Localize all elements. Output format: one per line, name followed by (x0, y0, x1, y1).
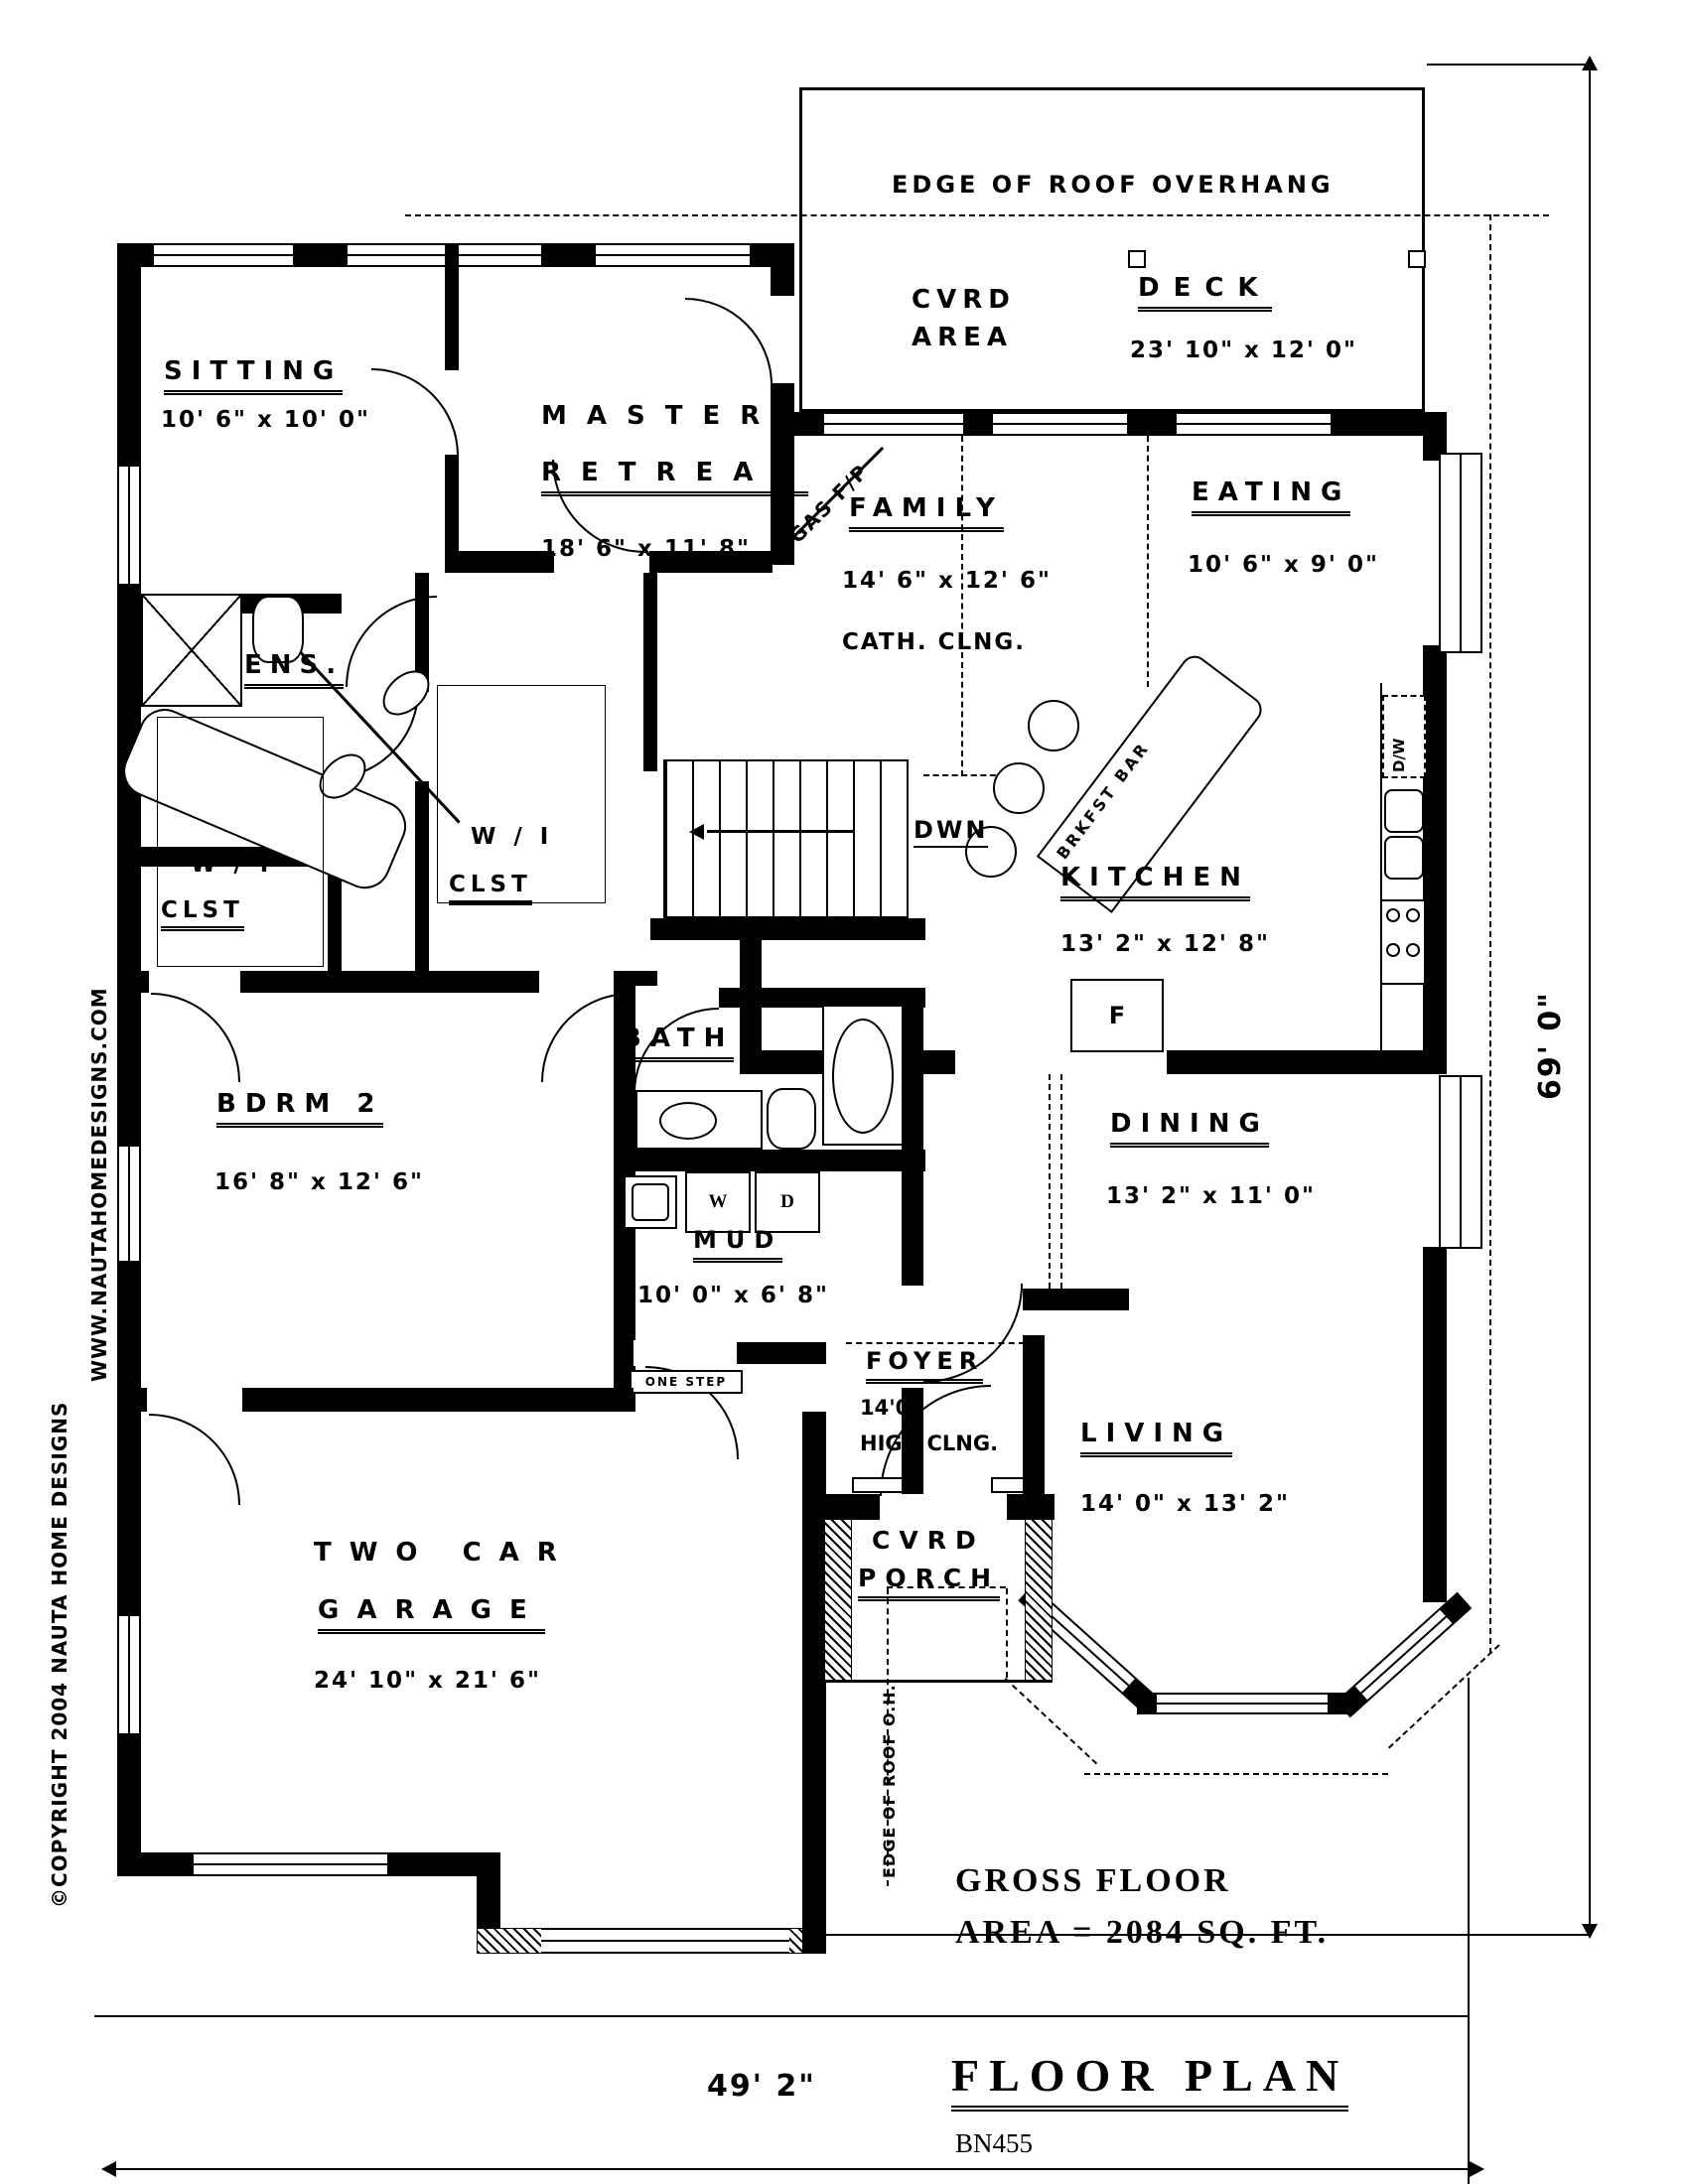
wall-right (1423, 1247, 1447, 1602)
bath-sink (659, 1102, 717, 1140)
window (824, 412, 963, 436)
toilet (767, 1088, 816, 1150)
dims-bdrm2: 16' 8" x 12' 6" (214, 1169, 424, 1195)
plan-number: BN455 (955, 2128, 1033, 2159)
stool (1028, 700, 1079, 751)
label-cvrd-area1: CVRD (912, 286, 1016, 316)
dims-master: 18' 6" x 11' 8" (541, 536, 751, 562)
closet-shelf (437, 685, 606, 903)
wall-foyer-right (1023, 1335, 1045, 1494)
one-step-label: ONE STEP (645, 1375, 727, 1389)
tub-basin (832, 1019, 894, 1134)
deck-post (1128, 250, 1146, 268)
breakfast-bar-label: BRKFST BAR (1053, 739, 1153, 863)
label-ens: ENS. (244, 651, 344, 689)
patio-door (993, 412, 1127, 436)
label-dwn: DWN (914, 816, 988, 848)
dims-sitting: 10' 6" x 10' 0" (161, 407, 370, 433)
label-dining: DINING (1110, 1110, 1269, 1148)
window (117, 467, 141, 584)
fridge: F (1070, 979, 1164, 1052)
sink-basin (1384, 789, 1424, 833)
label-mud: MUD (693, 1227, 782, 1263)
washer-label: W (709, 1191, 728, 1213)
wall (445, 455, 459, 564)
window (596, 243, 750, 267)
label-bdrm2: BDRM 2 (216, 1090, 383, 1128)
window (117, 1147, 141, 1261)
dim-arrow-down (1582, 1924, 1598, 1939)
label-sitting: SITTING (164, 357, 343, 395)
dryer: D (755, 1171, 820, 1233)
label-master1: MASTER (541, 402, 779, 432)
dims-garage: 24' 10" x 21' 6" (314, 1668, 541, 1694)
window (1354, 1608, 1454, 1701)
porch-edge (824, 1680, 1053, 1683)
burner (1386, 908, 1400, 922)
label-deck: DECK (1138, 274, 1272, 312)
floor-plan-sheet: F ONE STEP D/W BRKFST BAR (0, 0, 1688, 2184)
label-family: FAMILY (849, 494, 1004, 532)
wall (902, 988, 923, 1286)
ceiling-break (961, 436, 963, 776)
burner (1406, 943, 1420, 957)
dims-dining: 13' 2" x 11' 0" (1106, 1183, 1316, 1209)
dim-width-label: 49' 2" (707, 2069, 816, 2104)
roof-overhang-line (405, 214, 1549, 216)
label-wicl2-a: W / I (471, 824, 553, 850)
wall-garage-right (802, 1412, 826, 1954)
dryer-label: D (780, 1191, 794, 1213)
stairs-arrow-line (707, 830, 854, 833)
window (154, 243, 293, 267)
label-garage1: TWO CAR (314, 1539, 575, 1569)
door-gap (880, 1492, 1007, 1522)
label-garage2: GARAGE (318, 1596, 545, 1634)
note-cath-clng: CATH. CLNG. (842, 629, 1026, 655)
wall-bath-bottom (614, 1150, 925, 1171)
label-wicl1-a: W / I (191, 852, 273, 878)
wall (415, 781, 429, 971)
website-vertical: WWW.NAUTAHOMEDESIGNS.COM (87, 987, 111, 1382)
dims-living: 14' 0" x 13' 2" (1080, 1491, 1290, 1517)
sidelight (852, 1477, 904, 1493)
wall-living-bay-right (1336, 1592, 1472, 1718)
porch-wall-right (1025, 1519, 1053, 1683)
roof-overhang-label: EDGE OF ROOF OVERHANG (892, 171, 1335, 199)
door-gap (147, 1386, 242, 1414)
washer: W (685, 1171, 751, 1233)
note-foyer-height: 14'0" (860, 1396, 920, 1420)
note-foyer-clng: HIGH CLNG. (860, 1432, 998, 1455)
dim-ext-line (1427, 64, 1589, 66)
wall-stairs-bottom (650, 918, 925, 940)
dim-line-bottom (111, 2168, 1474, 2170)
wall (643, 573, 657, 771)
dishwasher-label: D/W (1390, 739, 1408, 772)
deck-post (1408, 250, 1426, 268)
shower (141, 594, 242, 707)
porch-wall-left (824, 1519, 852, 1683)
dim-arrow-left (101, 2161, 116, 2177)
frame-line (1468, 1678, 1470, 2184)
roof-overhang-line (1006, 1588, 1008, 1678)
wall-dining-bottom (1023, 1289, 1129, 1310)
sheet-title: FLOOR PLAN (951, 2049, 1348, 2112)
copyright-vertical: ©COPYRIGHT 2004 NAUTA HOME DESIGNS (48, 1402, 71, 1908)
label-cvrd-area2: AREA (912, 324, 1013, 353)
door-gap (149, 969, 240, 995)
burner (1386, 943, 1400, 957)
wall (445, 243, 459, 370)
window (117, 1616, 141, 1733)
door-gap (771, 296, 794, 383)
dims-mud: 10' 0" x 6' 8" (637, 1283, 829, 1308)
door-arc (149, 1414, 240, 1505)
roof-overhang-line (1005, 1678, 1098, 1764)
wall-right (1423, 645, 1447, 1072)
door-arc (371, 368, 459, 456)
dim-arrow-right (1470, 2161, 1484, 2177)
door-gap (633, 1340, 737, 1366)
roof-oh-label: EDGE OF ROOF O.H. (880, 1684, 899, 1878)
ceiling-break (1147, 436, 1149, 687)
label-kitchen: KITCHEN (1060, 864, 1250, 901)
dims-eating: 10' 6" x 9' 0" (1188, 552, 1379, 578)
sink-basin (1384, 836, 1424, 880)
bay-window-mullion (1460, 453, 1462, 653)
dim-height-label: 69' 0" (1533, 991, 1568, 1100)
fridge-label: F (1109, 1002, 1125, 1029)
garage-door (541, 1928, 789, 1954)
one-step-box: ONE STEP (630, 1370, 743, 1394)
label-porch1: CVRD (872, 1527, 985, 1556)
window (194, 1852, 387, 1876)
bay-window-mullion (1460, 1075, 1462, 1249)
door-arc (151, 993, 240, 1082)
ceiling-break (1049, 1074, 1051, 1289)
roof-overhang-line (1084, 1773, 1388, 1775)
wall-kitchen-bottom (1167, 1050, 1447, 1074)
window (1177, 412, 1331, 436)
gross-area-line1: GROSS FLOOR (955, 1862, 1231, 1900)
dim-line-right (1589, 66, 1591, 1936)
label-eating: EATING (1192, 478, 1350, 516)
label-wicl2-b: CLST (449, 872, 532, 905)
dims-deck: 23' 10" x 12' 0" (1130, 338, 1357, 363)
label-living: LIVING (1080, 1420, 1232, 1457)
label-foyer: FOYER (866, 1348, 983, 1384)
label-master2: RETREAT (541, 459, 808, 496)
label-porch2: PORCH (858, 1565, 1000, 1601)
roof-overhang-line (1489, 214, 1491, 1654)
stairs-arrow (689, 824, 704, 840)
frame-line (94, 2015, 1470, 2017)
window (1157, 1693, 1328, 1714)
gross-area-line2: AREA = 2084 SQ. FT. (955, 1914, 1329, 1952)
label-wicl1-b: CLST (161, 897, 244, 931)
dims-kitchen: 13' 2" x 12' 8" (1060, 931, 1270, 957)
dims-family: 14' 6" x 12' 6" (842, 568, 1052, 594)
label-bath: BATH (622, 1024, 734, 1062)
ceiling-break (1060, 1074, 1062, 1289)
door-arc (685, 298, 773, 385)
stool (993, 762, 1045, 814)
burner (1406, 908, 1420, 922)
laundry-sink-basin (632, 1183, 669, 1221)
